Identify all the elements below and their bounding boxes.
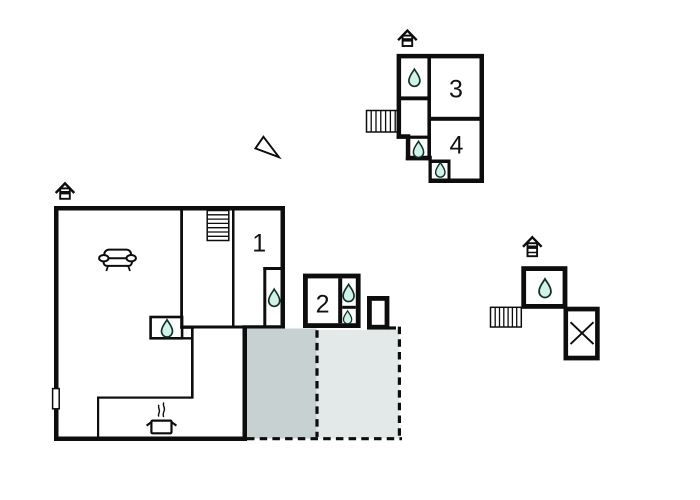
svg-text:3: 3 [449,75,463,103]
svg-text:2: 2 [316,290,330,318]
svg-text:1: 1 [252,230,266,258]
svg-text:4: 4 [449,131,463,159]
